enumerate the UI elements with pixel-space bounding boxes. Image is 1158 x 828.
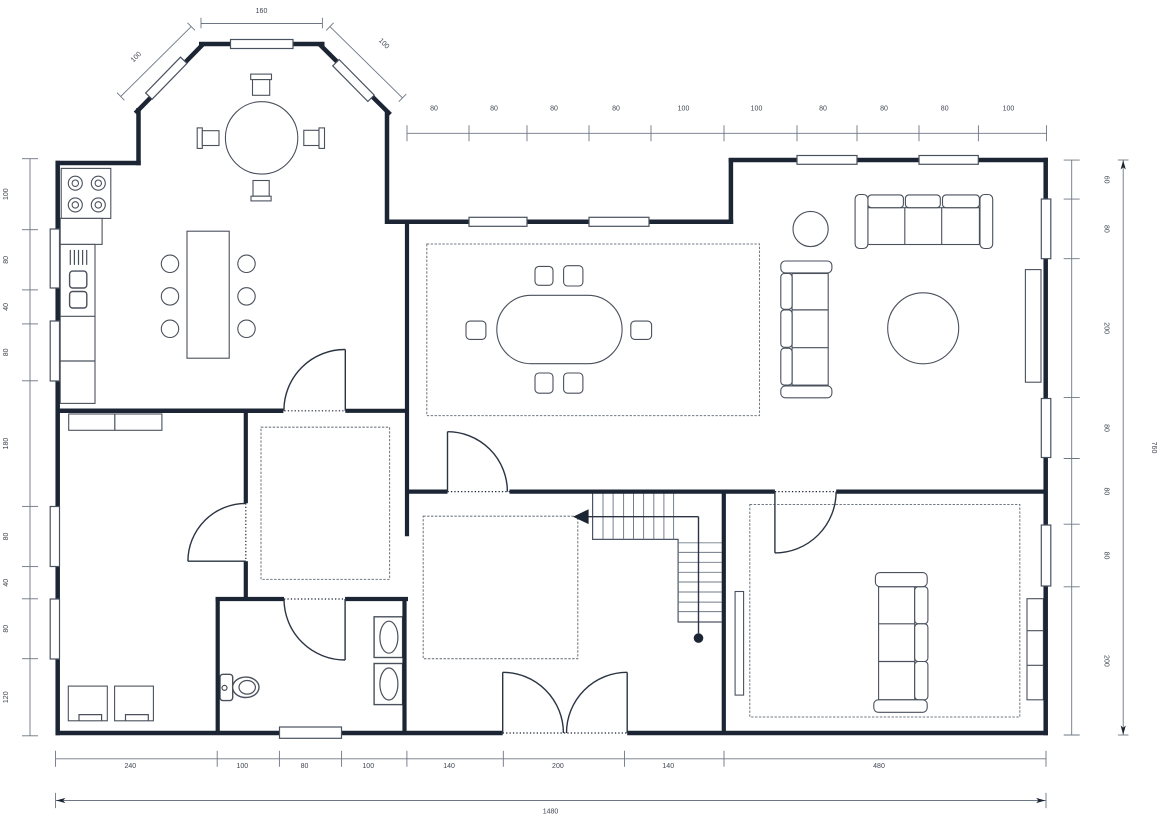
- svg-text:480: 480: [873, 763, 885, 770]
- svg-text:80: 80: [3, 256, 10, 264]
- svg-text:80: 80: [301, 763, 309, 770]
- svg-text:60: 60: [1103, 176, 1110, 184]
- svg-text:80: 80: [490, 106, 498, 113]
- svg-text:140: 140: [443, 763, 455, 770]
- svg-text:1480: 1480: [543, 809, 559, 816]
- svg-text:80: 80: [550, 106, 558, 113]
- svg-text:100: 100: [678, 106, 690, 113]
- svg-text:100: 100: [3, 188, 10, 200]
- svg-text:40: 40: [3, 579, 10, 587]
- svg-text:80: 80: [1103, 424, 1110, 432]
- svg-text:140: 140: [662, 763, 674, 770]
- svg-text:180: 180: [3, 438, 10, 450]
- svg-text:80: 80: [941, 106, 949, 113]
- svg-text:80: 80: [1103, 225, 1110, 233]
- svg-text:80: 80: [3, 625, 10, 633]
- svg-text:40: 40: [3, 303, 10, 311]
- svg-text:100: 100: [1003, 106, 1015, 113]
- svg-text:80: 80: [1103, 552, 1110, 560]
- svg-text:80: 80: [3, 533, 10, 541]
- svg-text:80: 80: [880, 106, 888, 113]
- svg-text:120: 120: [3, 691, 10, 703]
- svg-text:80: 80: [612, 106, 620, 113]
- svg-text:100: 100: [236, 763, 248, 770]
- svg-text:160: 160: [256, 8, 268, 15]
- svg-text:200: 200: [1103, 655, 1110, 667]
- svg-text:80: 80: [430, 106, 438, 113]
- svg-text:80: 80: [819, 106, 827, 113]
- svg-text:100: 100: [751, 106, 763, 113]
- svg-text:200: 200: [1103, 322, 1110, 334]
- svg-text:100: 100: [362, 763, 374, 770]
- svg-text:200: 200: [552, 763, 564, 770]
- svg-text:240: 240: [125, 763, 137, 770]
- svg-text:80: 80: [1103, 487, 1110, 495]
- svg-text:80: 80: [3, 348, 10, 356]
- svg-text:760: 760: [1150, 442, 1157, 454]
